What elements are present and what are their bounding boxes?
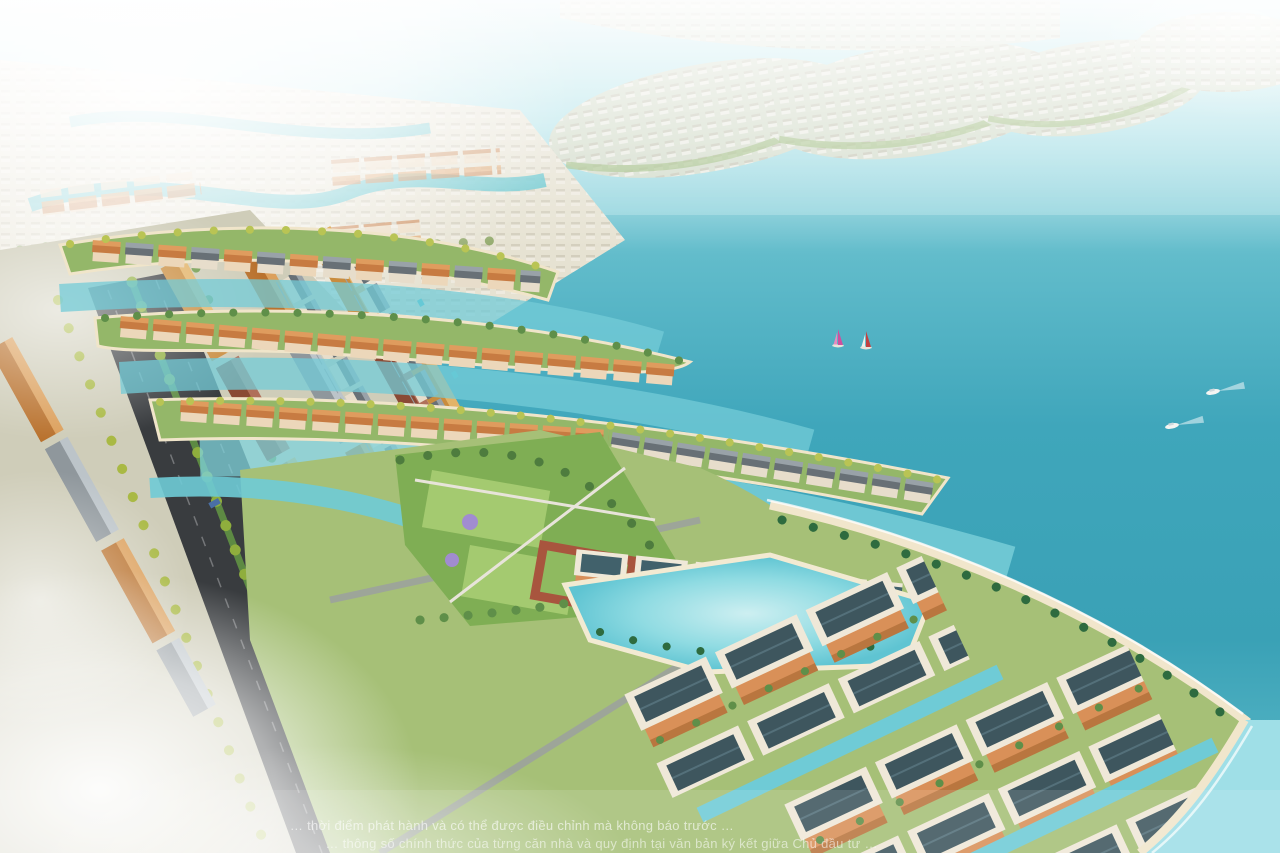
render-canvas xyxy=(0,0,1280,853)
jacaranda-tree xyxy=(462,514,478,530)
aerial-render: … thời điểm phát hành và có thể được điề… xyxy=(0,0,1280,853)
jacaranda-tree xyxy=(445,553,459,567)
